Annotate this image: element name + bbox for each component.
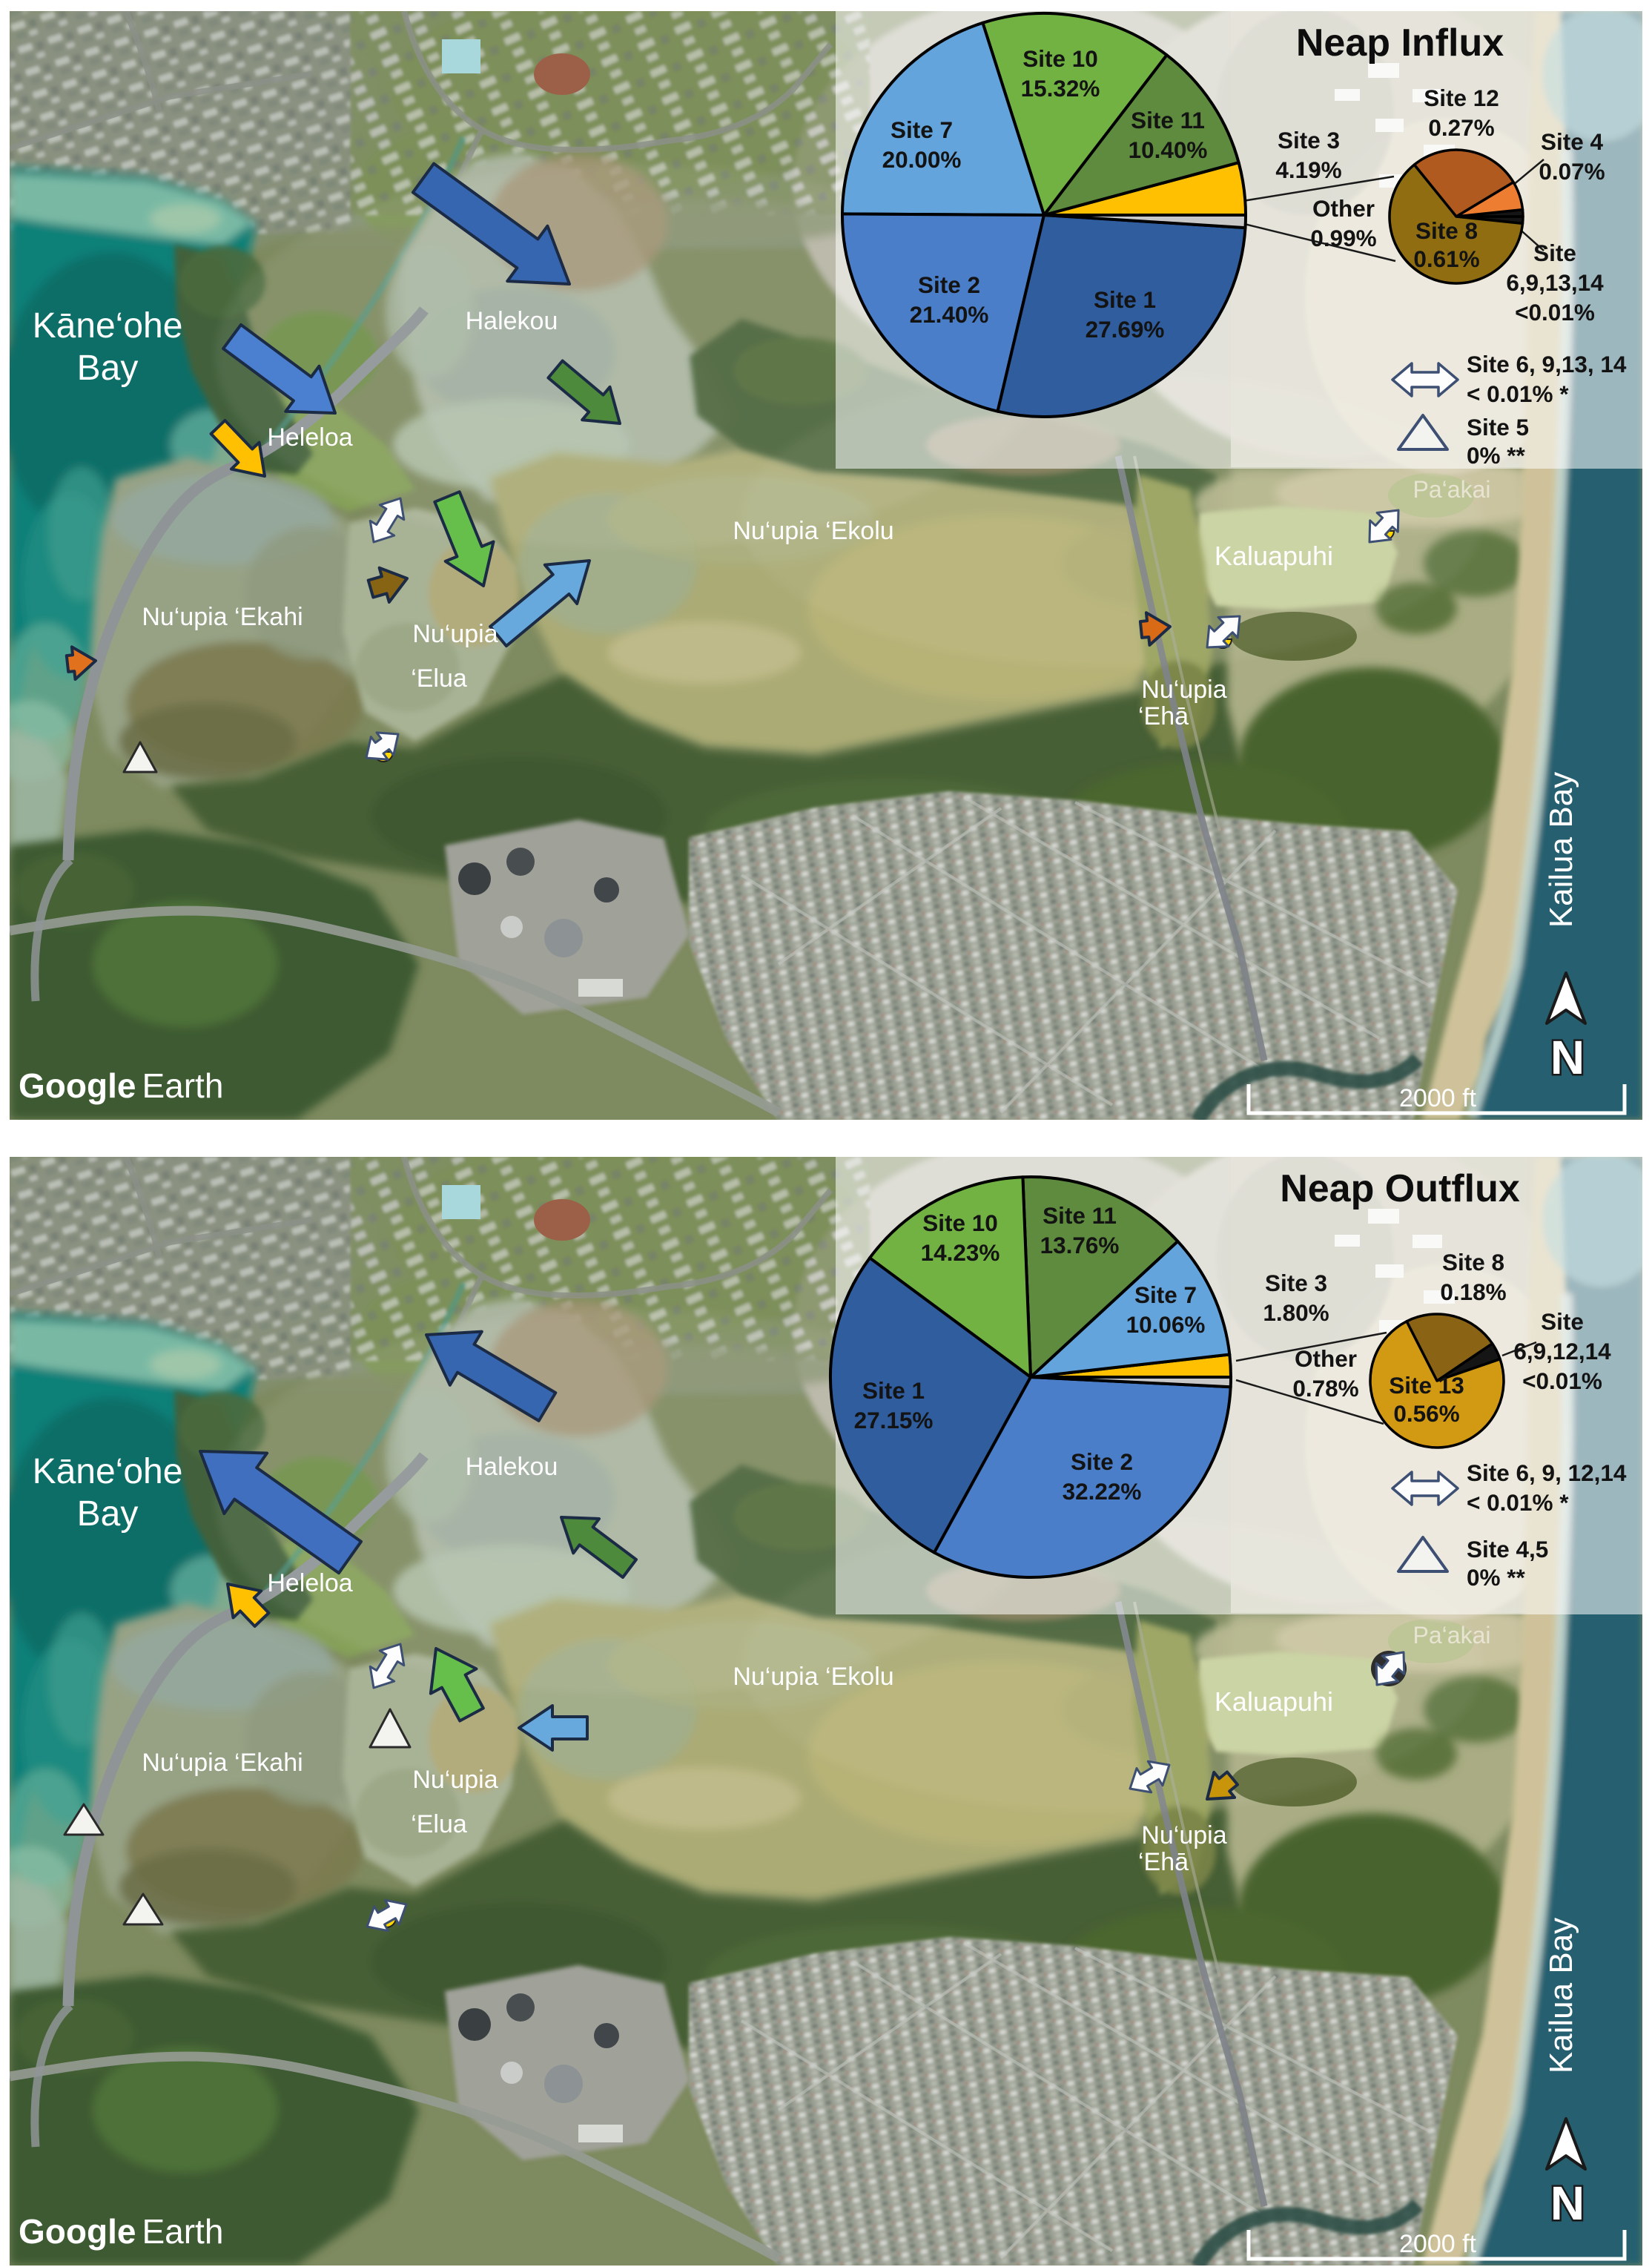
svg-text:GoogleEarth: GoogleEarth: [19, 2212, 223, 2251]
svg-text:2000 ft: 2000 ft: [1399, 2230, 1477, 2258]
svg-text:0.18%: 0.18%: [1440, 1278, 1506, 1305]
svg-text:Neap Outflux: Neap Outflux: [1280, 1167, 1520, 1210]
svg-text:0% **: 0% **: [1467, 442, 1526, 469]
svg-text:Halekou: Halekou: [466, 1453, 558, 1481]
svg-text:Site 4,5: Site 4,5: [1467, 1536, 1548, 1563]
svg-text:Site 3: Site 3: [1278, 127, 1340, 154]
svg-text:20.00%: 20.00%: [882, 146, 962, 173]
svg-text:Site: Site: [1541, 1308, 1584, 1335]
svg-text:14.23%: 14.23%: [921, 1239, 1000, 1266]
svg-text:Nu‘upia ‘Ekolu: Nu‘upia ‘Ekolu: [733, 517, 893, 545]
svg-text:Kāne‘ohe: Kāne‘ohe: [33, 1452, 183, 1491]
svg-text:27.69%: 27.69%: [1086, 316, 1165, 343]
svg-text:Site 3: Site 3: [1265, 1270, 1327, 1296]
svg-text:‘Elua: ‘Elua: [411, 1810, 467, 1838]
svg-text:Site 10: Site 10: [1022, 45, 1098, 72]
svg-text:Halekou: Halekou: [466, 307, 558, 335]
svg-text:Site 11: Site 11: [1043, 1202, 1117, 1229]
svg-text:Nu‘upia ‘Ekahi: Nu‘upia ‘Ekahi: [142, 603, 303, 631]
svg-text:Kaluapuhi: Kaluapuhi: [1215, 541, 1333, 571]
svg-text:0.61%: 0.61%: [1413, 245, 1479, 272]
svg-text:Site 2: Site 2: [918, 271, 980, 298]
svg-text:Pa‘akai: Pa‘akai: [1413, 476, 1491, 503]
svg-text:Bay: Bay: [77, 349, 139, 388]
svg-text:Site 6, 9, 12,14: Site 6, 9, 12,14: [1467, 1459, 1627, 1486]
svg-text:‘Ehā: ‘Ehā: [1138, 702, 1189, 730]
svg-text:Neap Influx: Neap Influx: [1296, 22, 1504, 65]
svg-text:21.40%: 21.40%: [910, 301, 989, 328]
svg-text:27.15%: 27.15%: [854, 1407, 934, 1433]
svg-text:0.78%: 0.78%: [1292, 1375, 1358, 1402]
svg-text:13.76%: 13.76%: [1040, 1232, 1120, 1258]
svg-text:32.22%: 32.22%: [1063, 1478, 1142, 1505]
svg-text:Kaluapuhi: Kaluapuhi: [1215, 1686, 1333, 1717]
svg-text:0.99%: 0.99%: [1310, 225, 1376, 251]
svg-text:Site: Site: [1533, 240, 1576, 266]
svg-text:Nu‘upia: Nu‘upia: [1141, 1821, 1226, 1849]
svg-text:4.19%: 4.19%: [1275, 156, 1341, 183]
svg-text:Site 13: Site 13: [1389, 1372, 1464, 1399]
svg-text:Nu‘upia: Nu‘upia: [412, 1766, 498, 1794]
svg-text:Pa‘akai: Pa‘akai: [1413, 1622, 1491, 1649]
svg-text:Other: Other: [1295, 1345, 1357, 1372]
svg-text:Site 11: Site 11: [1131, 107, 1205, 133]
svg-text:Site 8: Site 8: [1442, 1249, 1504, 1276]
svg-text:Site 2: Site 2: [1071, 1448, 1133, 1475]
svg-text:Heleloa: Heleloa: [267, 423, 352, 452]
svg-text:0% **: 0% **: [1467, 1564, 1526, 1591]
svg-text:Nu‘upia ‘Ekahi: Nu‘upia ‘Ekahi: [142, 1749, 303, 1777]
svg-text:Nu‘upia ‘Ekolu: Nu‘upia ‘Ekolu: [733, 1663, 893, 1691]
svg-text:< 0.01% *: < 0.01% *: [1467, 380, 1569, 407]
svg-text:Site 4: Site 4: [1541, 128, 1604, 155]
svg-text:1.80%: 1.80%: [1263, 1299, 1329, 1326]
svg-text:Bay: Bay: [77, 1494, 139, 1534]
svg-text:0.27%: 0.27%: [1428, 114, 1494, 141]
svg-text:2000 ft: 2000 ft: [1399, 1084, 1477, 1112]
svg-text:Heleloa: Heleloa: [267, 1569, 352, 1597]
svg-text:<0.01%: <0.01%: [1522, 1367, 1602, 1394]
svg-text:Site 7: Site 7: [891, 116, 953, 143]
svg-text:Site 1: Site 1: [862, 1377, 925, 1404]
svg-text:15.32%: 15.32%: [1021, 75, 1100, 102]
svg-text:Site 5: Site 5: [1467, 414, 1529, 440]
svg-text:6,9,12,14: 6,9,12,14: [1513, 1338, 1611, 1365]
svg-text:Site 12: Site 12: [1424, 85, 1499, 111]
svg-text:0.07%: 0.07%: [1539, 158, 1605, 185]
svg-text:N: N: [1550, 1031, 1585, 1084]
svg-text:N: N: [1550, 2177, 1585, 2230]
svg-text:‘Ehā: ‘Ehā: [1138, 1848, 1189, 1876]
svg-text:GoogleEarth: GoogleEarth: [19, 1066, 223, 1105]
svg-text:0.56%: 0.56%: [1393, 1400, 1459, 1427]
svg-text:Kailua Bay: Kailua Bay: [1543, 1918, 1579, 2073]
svg-text:‘Elua: ‘Elua: [411, 664, 467, 693]
svg-text:Nu‘upia: Nu‘upia: [412, 620, 498, 648]
svg-text:Kailua Bay: Kailua Bay: [1543, 772, 1579, 928]
svg-text:Site 10: Site 10: [922, 1210, 998, 1236]
svg-text:<0.01%: <0.01%: [1515, 299, 1595, 326]
svg-text:Kāne‘ohe: Kāne‘ohe: [33, 306, 183, 346]
svg-text:10.06%: 10.06%: [1126, 1311, 1206, 1338]
svg-text:Site 8: Site 8: [1415, 217, 1478, 244]
svg-text:Site 7: Site 7: [1134, 1281, 1197, 1308]
svg-text:10.40%: 10.40%: [1129, 136, 1208, 163]
svg-text:Site 1: Site 1: [1094, 286, 1156, 313]
svg-text:Site 6, 9,13, 14: Site 6, 9,13, 14: [1467, 351, 1627, 377]
svg-text:< 0.01% *: < 0.01% *: [1467, 1489, 1569, 1516]
svg-text:6,9,13,14: 6,9,13,14: [1506, 269, 1604, 296]
svg-text:Nu‘upia: Nu‘upia: [1141, 676, 1226, 704]
svg-text:Other: Other: [1312, 195, 1375, 222]
